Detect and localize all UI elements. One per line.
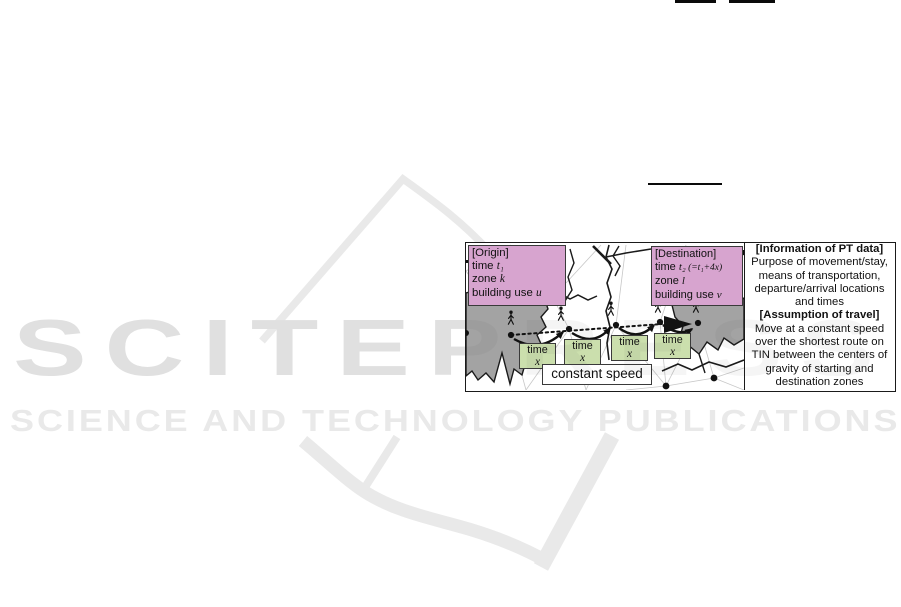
time-box-2-label: time <box>565 341 600 353</box>
top-rule-fragment-1 <box>675 0 716 3</box>
time-box-3-value: x <box>612 349 647 361</box>
time-box-2: time x <box>564 339 601 365</box>
paper-page: { "watermark": { "title": "SCITEPRESS", … <box>0 0 901 607</box>
top-rule-fragment-2 <box>729 0 775 3</box>
constant-speed-label: constant speed <box>542 364 652 385</box>
info-panel-heading-assumption: [Assumption of travel] <box>746 309 893 322</box>
origin-zone-var: k <box>500 273 505 285</box>
origin-use-var: u <box>536 287 542 299</box>
origin-box-title: [Origin] <box>472 247 562 260</box>
destination-box-title: [Destination] <box>655 248 739 261</box>
time-box-4: time x <box>654 333 691 359</box>
time-box-2-value: x <box>565 353 600 365</box>
time-box-3: time x <box>611 335 648 361</box>
origin-time-label: time <box>472 260 497 272</box>
origin-zone-label: zone <box>472 273 500 285</box>
origin-use-label: building use <box>472 287 536 299</box>
time-box-4-value: x <box>655 347 690 359</box>
origin-box: [Origin] time t₁ zone k building use u <box>468 245 566 306</box>
time-box-3-label: time <box>612 337 647 349</box>
origin-use-row: building use u <box>472 287 562 300</box>
origin-zone-row: zone k <box>472 273 562 286</box>
destination-use-row: building use v <box>655 289 739 302</box>
destination-zone-label: zone <box>655 275 682 287</box>
time-box-4-label: time <box>655 335 690 347</box>
destination-zone-var: l <box>682 275 685 287</box>
origin-time-var: t₁ <box>497 260 504 272</box>
info-panel: [Information of PT data] Purpose of move… <box>744 243 894 390</box>
destination-time-label: time <box>655 261 679 273</box>
destination-box: [Destination] time t₂ (=t₁+4x) zone l bu… <box>651 246 743 306</box>
info-panel-heading-pt-data: [Information of PT data] <box>746 243 893 256</box>
destination-use-label: building use <box>655 289 717 301</box>
watermark-subtitle: SCIENCE AND TECHNOLOGY PUBLICATIONS <box>10 406 900 437</box>
destination-time-formula: (=t₁+4x) <box>686 263 722 273</box>
info-panel-body-pt-data: Purpose of movement/stay, means of trans… <box>746 256 893 309</box>
origin-time-row: time t₁ <box>472 260 562 273</box>
time-box-1-label: time <box>520 345 555 357</box>
info-panel-body-assumption: Move at a constant speed over the shorte… <box>746 323 893 389</box>
destination-time-var: t₂ <box>679 261 686 273</box>
destination-use-var: v <box>717 289 722 301</box>
fraction-bar <box>648 183 722 185</box>
destination-time-row: time t₂ (=t₁+4x) <box>655 261 739 275</box>
figure-travel-diagram: [Origin] time t₁ zone k building use u [… <box>465 242 896 392</box>
destination-zone-row: zone l <box>655 275 739 288</box>
